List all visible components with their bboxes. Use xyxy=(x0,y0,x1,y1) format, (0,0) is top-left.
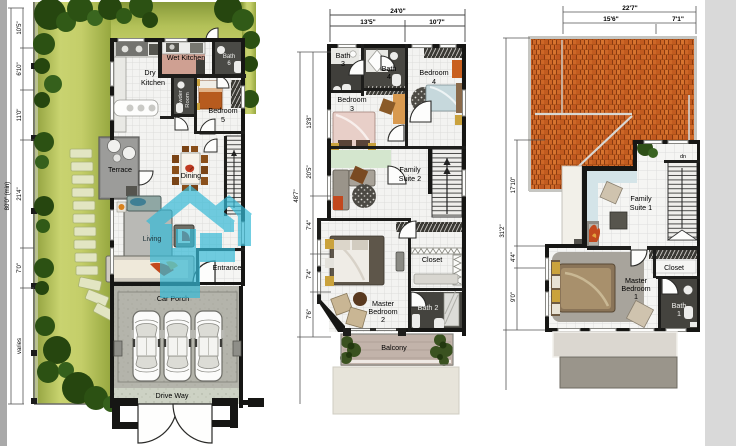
svg-text:11'0": 11'0" xyxy=(17,109,23,122)
svg-text:Drive Way: Drive Way xyxy=(156,391,189,400)
svg-text:7'6": 7'6" xyxy=(307,309,313,319)
svg-text:Suite 1: Suite 1 xyxy=(630,203,652,212)
svg-text:17'10": 17'10" xyxy=(511,177,517,194)
svg-text:5: 5 xyxy=(221,115,225,124)
svg-text:24'0": 24'0" xyxy=(390,8,405,15)
svg-text:Family: Family xyxy=(399,165,421,174)
svg-text:31'2": 31'2" xyxy=(500,224,506,237)
svg-text:Bedroom: Bedroom xyxy=(337,95,366,104)
svg-text:Terrace: Terrace xyxy=(108,165,132,174)
svg-text:7'1": 7'1" xyxy=(672,16,684,23)
svg-text:4'4": 4'4" xyxy=(511,252,517,262)
svg-text:10'5": 10'5" xyxy=(17,21,23,34)
svg-text:Closet: Closet xyxy=(664,265,684,272)
svg-text:1: 1 xyxy=(634,292,638,301)
svg-text:dn: dn xyxy=(680,154,686,160)
svg-text:13'5": 13'5" xyxy=(360,19,375,26)
svg-text:Closet: Closet xyxy=(422,255,442,264)
svg-text:13'8": 13'8" xyxy=(307,115,313,128)
svg-text:Powder: Powder xyxy=(178,90,184,110)
svg-text:7'4": 7'4" xyxy=(307,220,313,230)
svg-text:2: 2 xyxy=(381,315,385,324)
svg-text:20'5": 20'5" xyxy=(307,165,313,178)
svg-text:Wet Kitchen: Wet Kitchen xyxy=(167,53,206,62)
svg-text:9'0": 9'0" xyxy=(511,292,517,302)
svg-text:Dining: Dining xyxy=(181,171,201,180)
svg-text:15'6": 15'6" xyxy=(603,16,618,23)
svg-text:Bath: Bath xyxy=(223,54,235,60)
svg-text:10'7": 10'7" xyxy=(429,19,444,26)
svg-text:Bath 2: Bath 2 xyxy=(418,303,439,312)
svg-text:Family: Family xyxy=(630,194,652,203)
svg-text:22'7": 22'7" xyxy=(622,5,637,12)
svg-text:3: 3 xyxy=(341,59,345,68)
svg-text:1: 1 xyxy=(677,309,681,318)
svg-text:3: 3 xyxy=(350,104,354,113)
svg-text:varies: varies xyxy=(17,338,23,354)
svg-text:Entrance: Entrance xyxy=(213,263,242,272)
svg-text:6'10": 6'10" xyxy=(17,62,23,75)
svg-text:Kitchen: Kitchen xyxy=(141,78,165,87)
svg-text:4: 4 xyxy=(387,72,391,81)
svg-text:7'0": 7'0" xyxy=(17,263,23,273)
svg-text:Bedroom: Bedroom xyxy=(419,68,448,77)
svg-text:Living: Living xyxy=(143,234,162,243)
svg-text:Room: Room xyxy=(185,92,191,108)
svg-text:7'4": 7'4" xyxy=(307,269,313,279)
svg-text:48'7": 48'7" xyxy=(294,189,300,202)
svg-text:Balcony: Balcony xyxy=(381,343,407,352)
svg-text:4: 4 xyxy=(432,77,436,86)
svg-text:Suite 2: Suite 2 xyxy=(399,174,421,183)
svg-text:21'4": 21'4" xyxy=(17,187,23,200)
svg-text:Dry: Dry xyxy=(144,68,156,77)
svg-text:Bedroom: Bedroom xyxy=(208,106,237,115)
svg-text:80'0" (min): 80'0" (min) xyxy=(5,182,11,211)
